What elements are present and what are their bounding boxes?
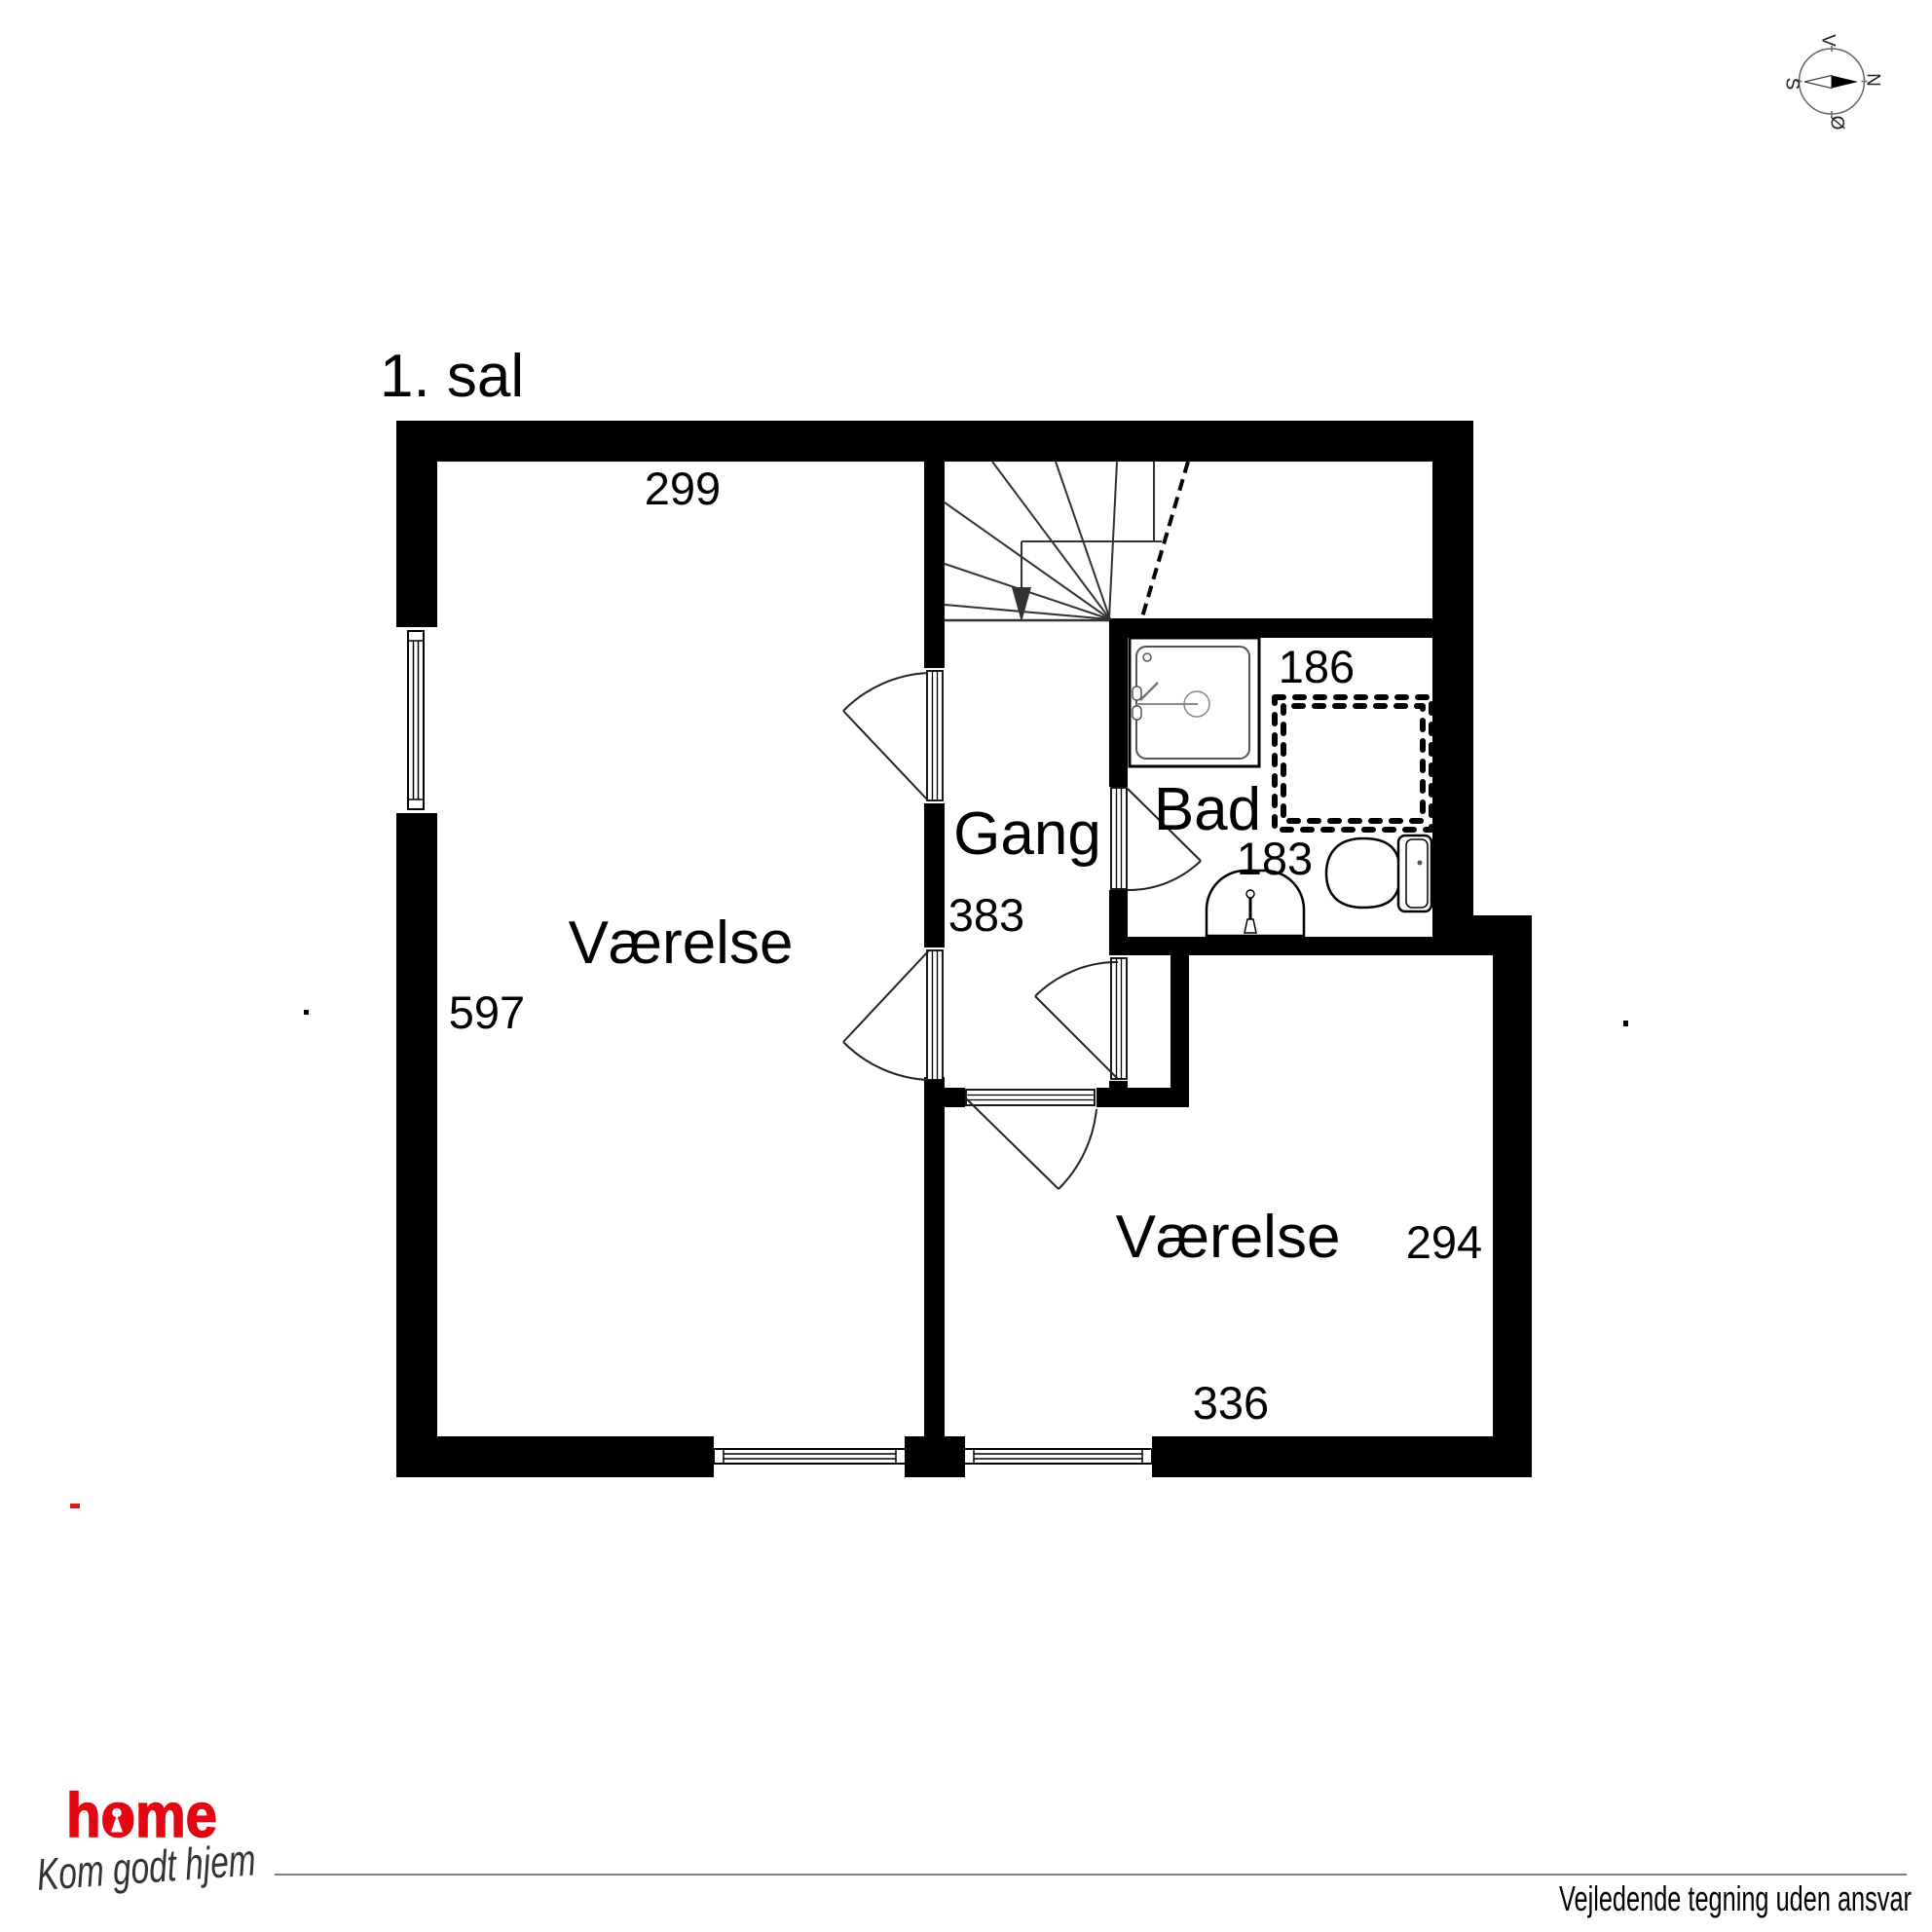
svg-text:383: 383 (948, 889, 1024, 941)
svg-text:294: 294 (1406, 1216, 1482, 1268)
svg-text:183: 183 (1237, 833, 1313, 884)
svg-text:Vejledende tegning uden ansvar: Vejledende tegning uden ansvar (1559, 1878, 1912, 1918)
svg-text:186: 186 (1279, 641, 1355, 692)
svg-text:V: V (1818, 34, 1839, 47)
svg-text:Værelse: Værelse (569, 910, 794, 977)
svg-text:Ø: Ø (1827, 116, 1847, 130)
svg-text:Gang: Gang (953, 800, 1101, 868)
svg-text:S: S (1782, 78, 1802, 91)
svg-text:Værelse: Værelse (1116, 1204, 1341, 1271)
svg-text:1. sal: 1. sal (380, 343, 524, 410)
svg-text:N: N (1863, 73, 1883, 87)
svg-text:597: 597 (449, 986, 525, 1038)
svg-text:299: 299 (645, 463, 721, 514)
svg-text:336: 336 (1193, 1377, 1269, 1429)
